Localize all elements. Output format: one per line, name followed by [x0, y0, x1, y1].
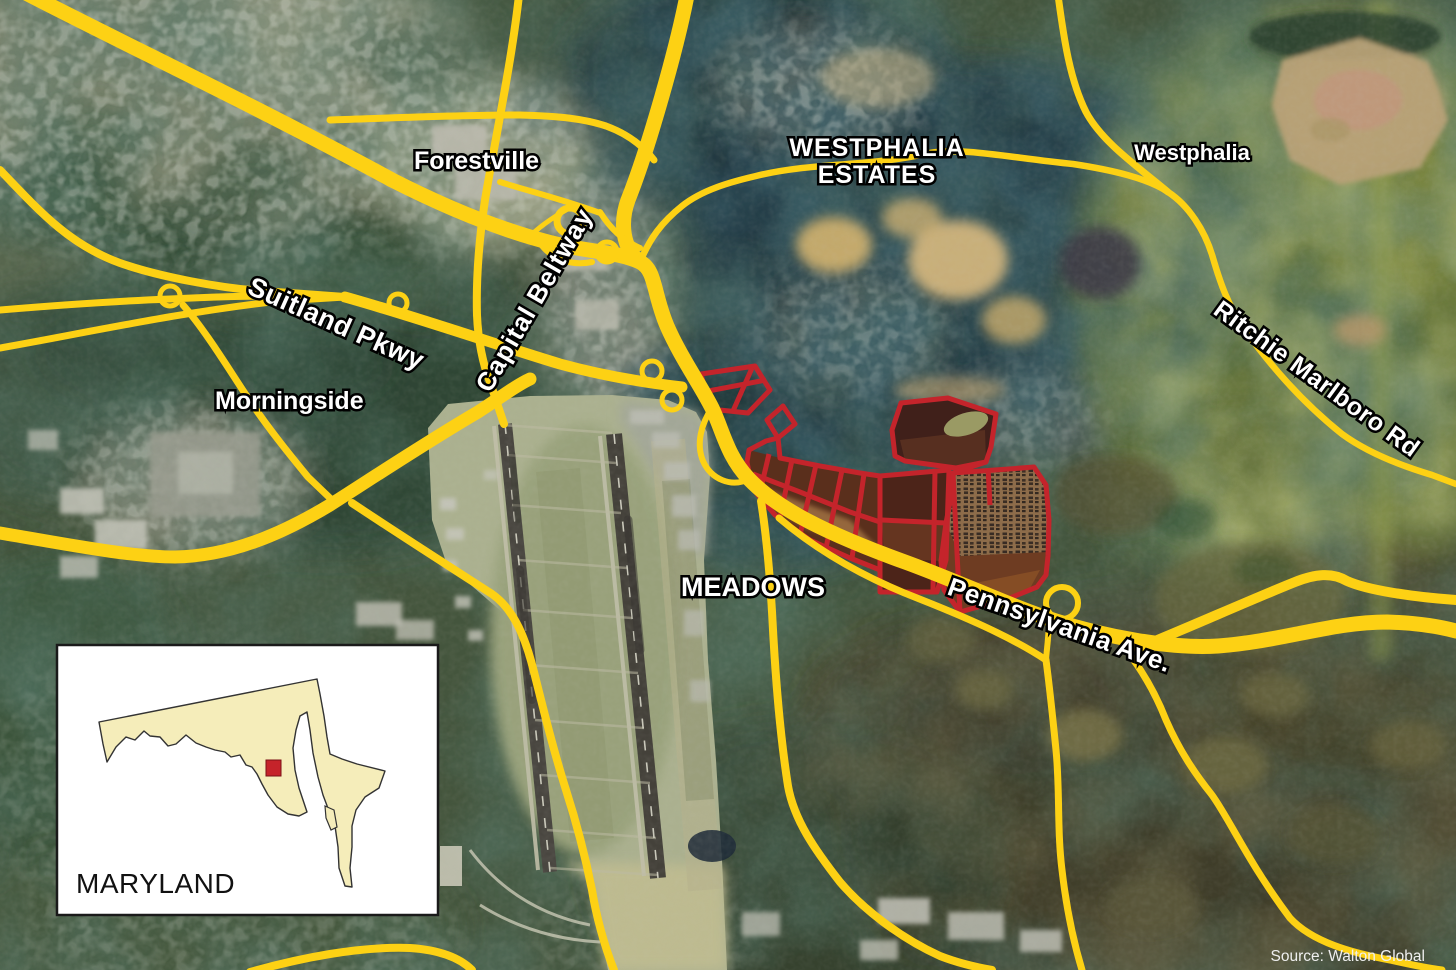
svg-text:ESTATES: ESTATES: [818, 161, 937, 189]
svg-text:Morningside: Morningside: [215, 387, 364, 415]
svg-text:MEADOWS: MEADOWS: [681, 572, 825, 602]
svg-text:WESTPHALIA: WESTPHALIA: [789, 134, 964, 162]
svg-text:Forestville: Forestville: [414, 147, 539, 175]
svg-text:Source: Walton Global: Source: Walton Global: [1270, 948, 1425, 965]
svg-text:MARYLAND: MARYLAND: [76, 868, 235, 899]
svg-text:Westphalia: Westphalia: [1134, 140, 1251, 165]
